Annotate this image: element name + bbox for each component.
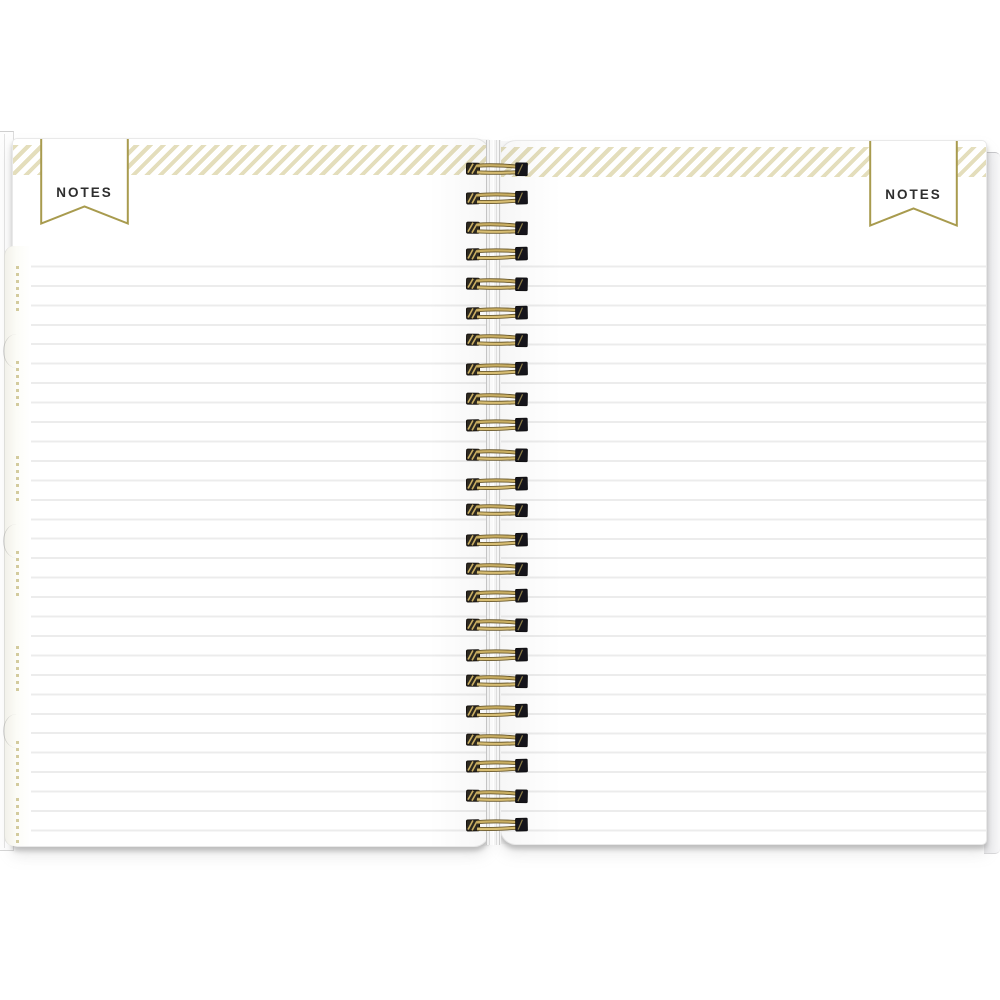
binding-coil [466,476,528,492]
binding-coil [466,532,528,548]
binding-coil [466,617,528,633]
tab-edge-curve [3,524,30,558]
notebook-product-photo: NOTES NOTES [0,0,1000,1000]
tab-edge-text-mark [16,798,19,844]
notes-banner: NOTES [40,139,129,227]
binding-coil [466,561,528,577]
binding-coil [466,758,528,774]
binding-coil [466,673,528,689]
binding-coil [466,276,528,292]
notes-banner: NOTES [869,141,958,229]
banner-ribbon-shape [40,139,129,227]
ruled-lines [501,248,986,832]
right-notes-page: NOTES [500,140,987,845]
tab-edge-curve [3,334,30,368]
binding-coil [466,647,528,663]
banner-label: NOTES [40,185,129,200]
ruled-lines [13,248,489,834]
binding-coil [466,417,528,433]
tab-edge-text-mark [16,456,19,502]
binding-coil [466,502,528,518]
binding-coil [466,305,528,321]
binding-coil [466,788,528,804]
tab-edge-curve [3,714,30,748]
tab-edge-text-mark [16,646,19,692]
binding-coil [466,246,528,262]
binding-coil [466,588,528,604]
left-notes-page: NOTES [12,138,490,847]
tab-edge-text-mark [16,266,19,312]
binding-coil [466,703,528,719]
banner-ribbon-shape [869,141,958,229]
binding-coil [466,361,528,377]
binding-coil [466,447,528,463]
binding-coil [466,332,528,348]
banner-label: NOTES [869,187,958,202]
binding-coil [466,220,528,236]
binding-coil [466,161,528,177]
binding-coil [466,190,528,206]
section-tab-edges [4,246,31,846]
binding-coil [466,732,528,748]
binding-coil [466,817,528,833]
binding-coil [466,391,528,407]
